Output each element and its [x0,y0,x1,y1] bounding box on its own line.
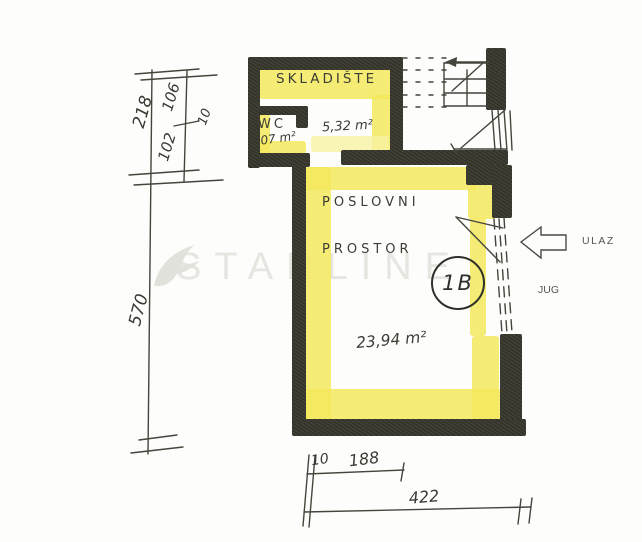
entrance-label: ULAZ [582,235,615,247]
main-room-area: 23,94 m² [355,328,427,352]
skladiste-area: 5,32 m² [322,118,374,136]
dim-bottom-seg: 188 [348,448,381,471]
orientation-label: JUG [538,283,550,298]
unit-number-badge: 1B [431,256,485,310]
wall-bottom [292,419,526,436]
wall-divider [341,150,508,165]
skladiste-label: SKLADIŠTE [276,71,377,87]
dim-left-total: 218 [129,94,157,131]
dim-bottom-total: 422 [408,486,440,508]
wall-top [248,57,402,70]
entrance-arrow-icon [521,227,566,258]
wall-main-left [292,153,306,423]
highlight-main-bottom [305,389,501,420]
wall-right-upper [492,165,512,218]
dim-seg-wall: 10 [195,107,215,128]
floor-plan-scan: STARLINE [0,0,642,542]
dim-seg-upper: 106 [158,81,184,114]
main-room-label-line1: POSLOVNI [322,195,420,210]
wall-skladiste-right [390,57,403,165]
dim-bottom-wall: 10 [310,451,330,469]
dim-height-total: 570 [125,292,153,329]
highlight-main-top [305,167,477,190]
dim-seg-lower: 102 [154,131,180,164]
wall-wc-jamb [296,106,308,128]
main-room-label-line2: PROSTOR [322,242,413,257]
wall-stair-right [486,48,506,110]
stair-direction-arrowhead [445,57,457,67]
watermark-bird-icon [148,242,204,290]
